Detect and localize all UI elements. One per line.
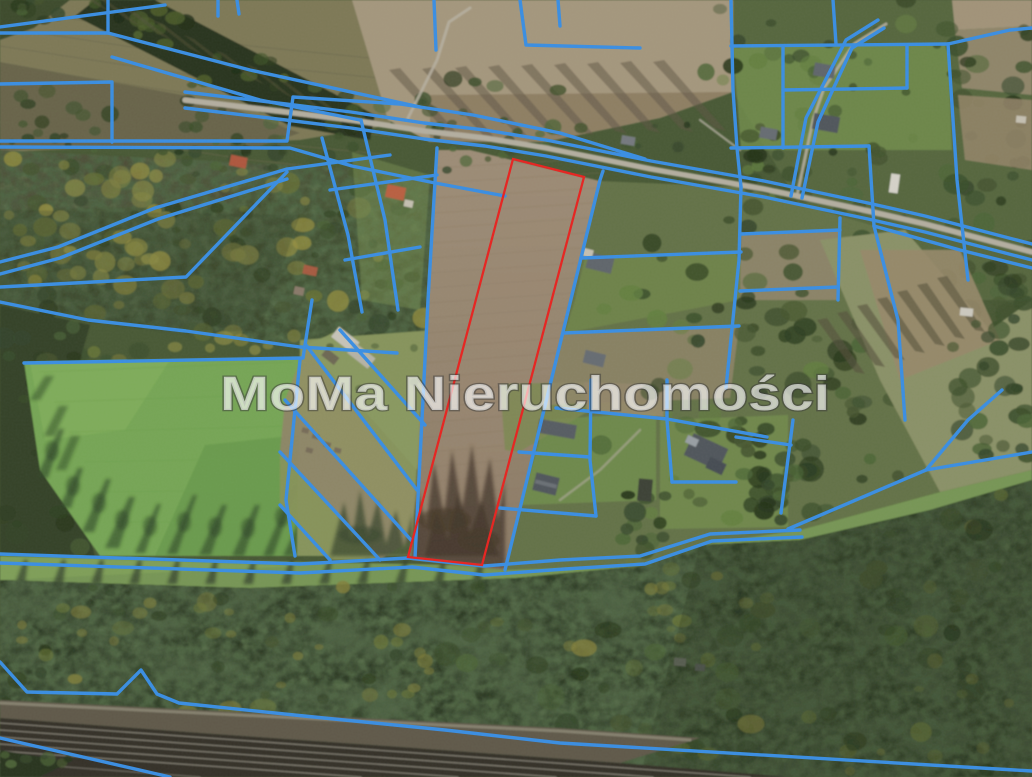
svg-text:MoMa Nieruchomości: MoMa Nieruchomości xyxy=(220,368,830,421)
